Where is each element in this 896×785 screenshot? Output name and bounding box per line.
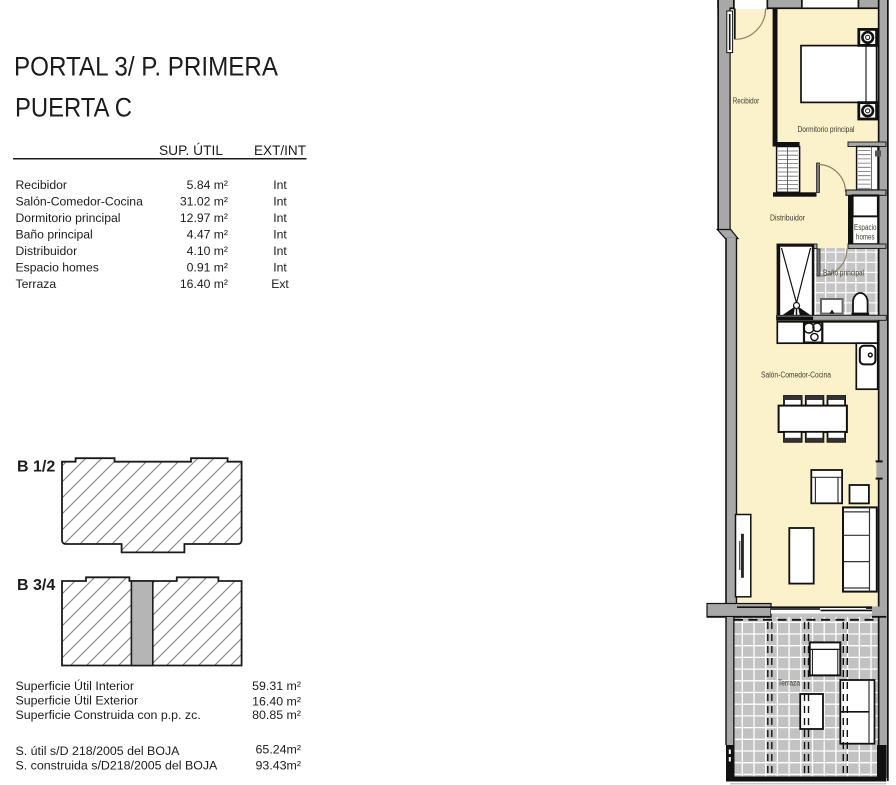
svg-text:4.47 m²: 4.47 m²	[187, 227, 228, 241]
svg-text:Recibidor: Recibidor	[733, 97, 760, 106]
svg-text:0.91 m²: 0.91 m²	[187, 260, 228, 274]
svg-text:Int: Int	[273, 260, 287, 274]
svg-text:PUERTA C: PUERTA C	[15, 93, 132, 123]
svg-text:Espacio homes: Espacio homes	[16, 260, 99, 274]
svg-text:65.24m²: 65.24m²	[256, 743, 301, 757]
svg-text:93.43m²: 93.43m²	[256, 759, 301, 773]
svg-text:Int: Int	[273, 211, 287, 225]
svg-text:Int: Int	[273, 244, 287, 258]
svg-text:Distribuidor: Distribuidor	[770, 214, 805, 223]
svg-text:Salón-Comedor-Cocina: Salón-Comedor-Cocina	[16, 194, 144, 208]
svg-text:31.02 m²: 31.02 m²	[180, 194, 228, 208]
svg-text:Terraza: Terraza	[16, 277, 57, 291]
svg-text:12.97 m²: 12.97 m²	[180, 211, 228, 225]
svg-text:Dormitorio principal: Dormitorio principal	[16, 211, 121, 225]
svg-text:Dormitorio principal: Dormitorio principal	[798, 125, 855, 134]
svg-text:S. construida s/D218/2005 del: S. construida s/D218/2005 del BOJA	[16, 759, 219, 773]
svg-text:Espacio: Espacio	[854, 223, 877, 232]
svg-text:Ext: Ext	[271, 277, 289, 291]
svg-text:Int: Int	[273, 178, 287, 192]
svg-text:Int: Int	[273, 194, 287, 208]
svg-text:4.10 m²: 4.10 m²	[187, 244, 228, 258]
svg-text:Salón-Comedor-Cocina: Salón-Comedor-Cocina	[761, 371, 831, 380]
svg-text:B 3/4: B 3/4	[17, 577, 55, 594]
svg-text:Recibidor: Recibidor	[16, 178, 67, 192]
svg-text:Superficie Útil Exterior: Superficie Útil Exterior	[16, 693, 139, 708]
svg-text:16.40 m²: 16.40 m²	[252, 695, 301, 709]
svg-text:80.85 m²: 80.85 m²	[252, 708, 301, 722]
svg-text:B 1/2: B 1/2	[17, 459, 55, 476]
svg-text:Baño principal: Baño principal	[16, 227, 93, 241]
svg-text:Distribuidor: Distribuidor	[16, 244, 78, 258]
svg-text:Int: Int	[273, 227, 287, 241]
svg-text:5.84 m²: 5.84 m²	[187, 178, 228, 192]
svg-text:PORTAL 3/ P. PRIMERA: PORTAL 3/ P. PRIMERA	[14, 51, 278, 81]
svg-text:59.31 m²: 59.31 m²	[252, 679, 301, 693]
svg-text:S. útil s/D 218/2005 del BOJA: S. útil s/D 218/2005 del BOJA	[16, 744, 181, 758]
svg-text:EXT/INT: EXT/INT	[254, 142, 306, 158]
svg-text:16.40 m²: 16.40 m²	[180, 277, 228, 291]
svg-text:SUP. ÚTIL: SUP. ÚTIL	[159, 142, 223, 158]
svg-text:Terraza: Terraza	[778, 679, 800, 688]
svg-text:Superficie Construida con p.p.: Superficie Construida con p.p. zc.	[16, 708, 201, 722]
svg-text:Superficie Útil Interior: Superficie Útil Interior	[16, 678, 134, 693]
svg-text:homes: homes	[856, 233, 875, 242]
svg-text:Baño principal: Baño principal	[823, 269, 864, 278]
